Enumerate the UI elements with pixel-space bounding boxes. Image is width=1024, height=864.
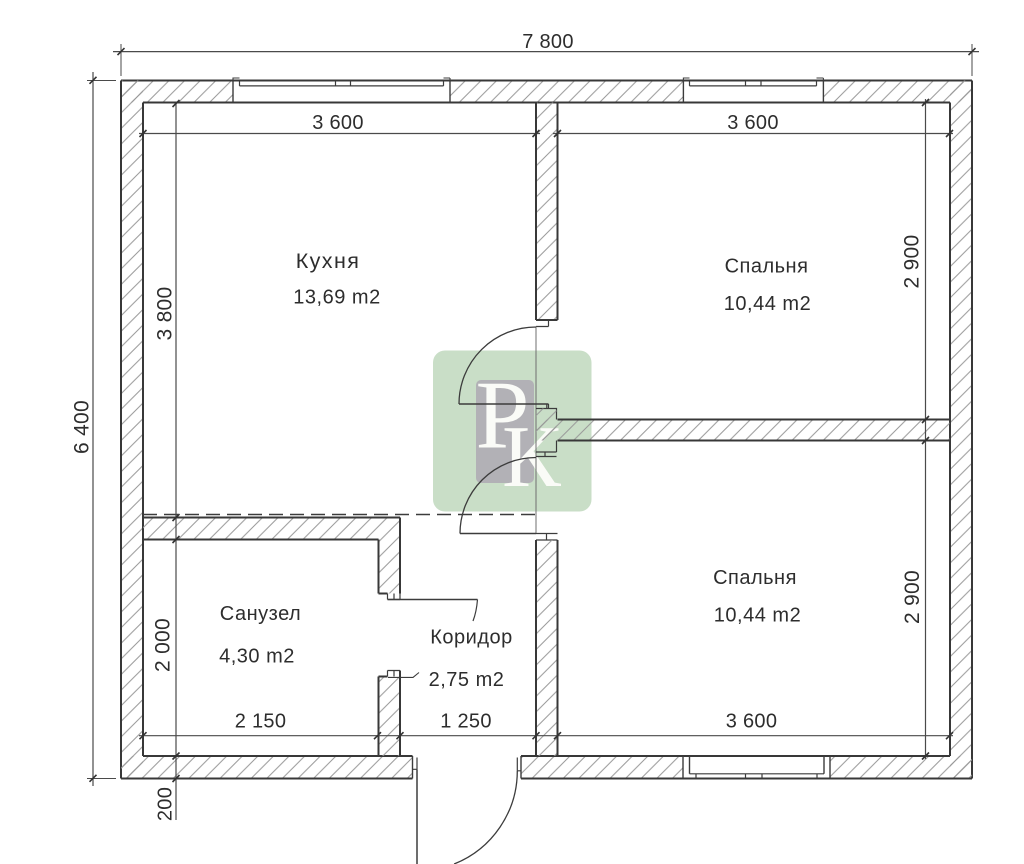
svg-text:Коридор: Коридор: [430, 627, 512, 649]
svg-text:Спальня: Спальня: [725, 256, 809, 278]
svg-text:2 150: 2 150: [235, 711, 287, 733]
svg-text:200: 200: [155, 787, 177, 821]
svg-text:3 600: 3 600: [312, 112, 364, 134]
svg-text:3 800: 3 800: [154, 286, 177, 340]
svg-text:3 600: 3 600: [727, 112, 779, 134]
svg-text:2 000: 2 000: [152, 618, 175, 672]
svg-text:10,44 m2: 10,44 m2: [714, 605, 801, 627]
svg-text:4,30 m2: 4,30 m2: [219, 646, 295, 668]
svg-text:Спальня: Спальня: [713, 567, 797, 589]
svg-text:2 900: 2 900: [901, 570, 924, 624]
svg-text:6 400: 6 400: [71, 400, 94, 454]
svg-text:2 900: 2 900: [901, 234, 924, 288]
svg-text:3 600: 3 600: [726, 711, 778, 733]
svg-text:10,44 m2: 10,44 m2: [724, 293, 811, 315]
svg-text:7 800: 7 800: [522, 31, 574, 53]
svg-text:1 250: 1 250: [440, 711, 492, 733]
svg-text:13,69 m2: 13,69 m2: [293, 287, 380, 309]
svg-text:Санузел: Санузел: [220, 603, 301, 625]
svg-text:2,75 m2: 2,75 m2: [429, 669, 505, 691]
svg-text:Кухня: Кухня: [296, 249, 361, 273]
